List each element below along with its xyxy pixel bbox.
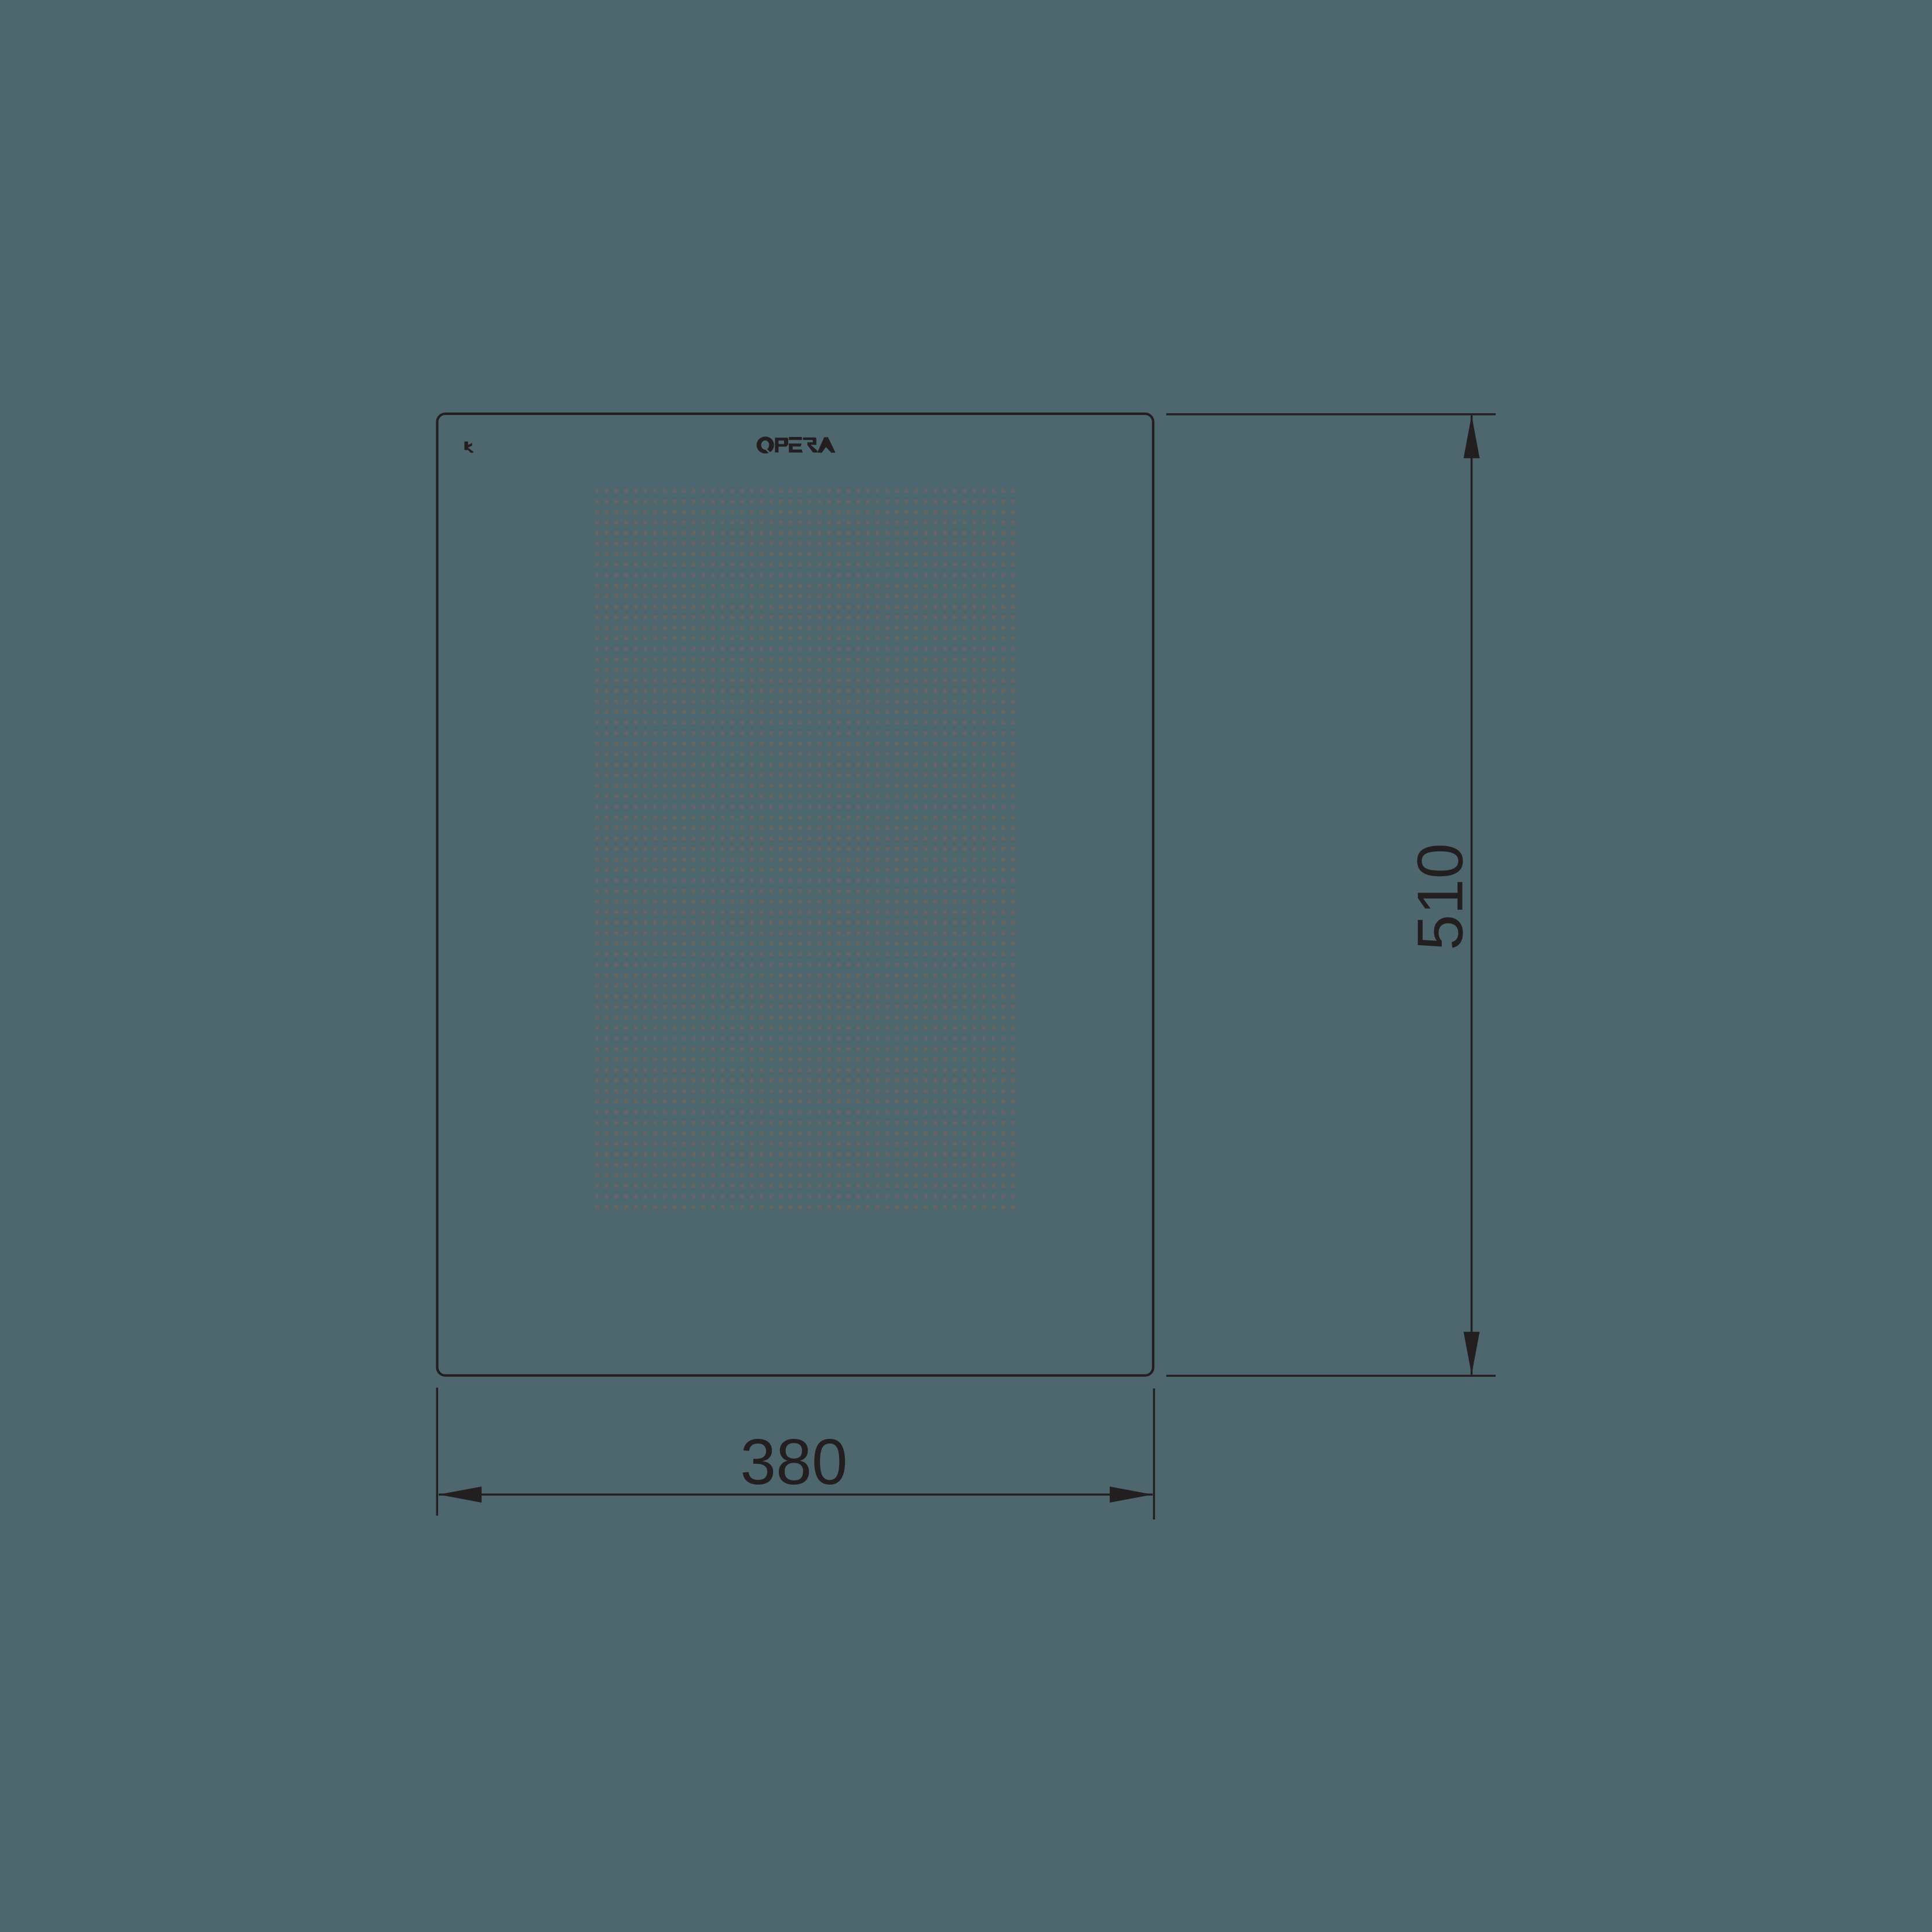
svg-text:380: 380: [740, 1426, 847, 1498]
svg-text:510: 510: [1405, 843, 1477, 950]
